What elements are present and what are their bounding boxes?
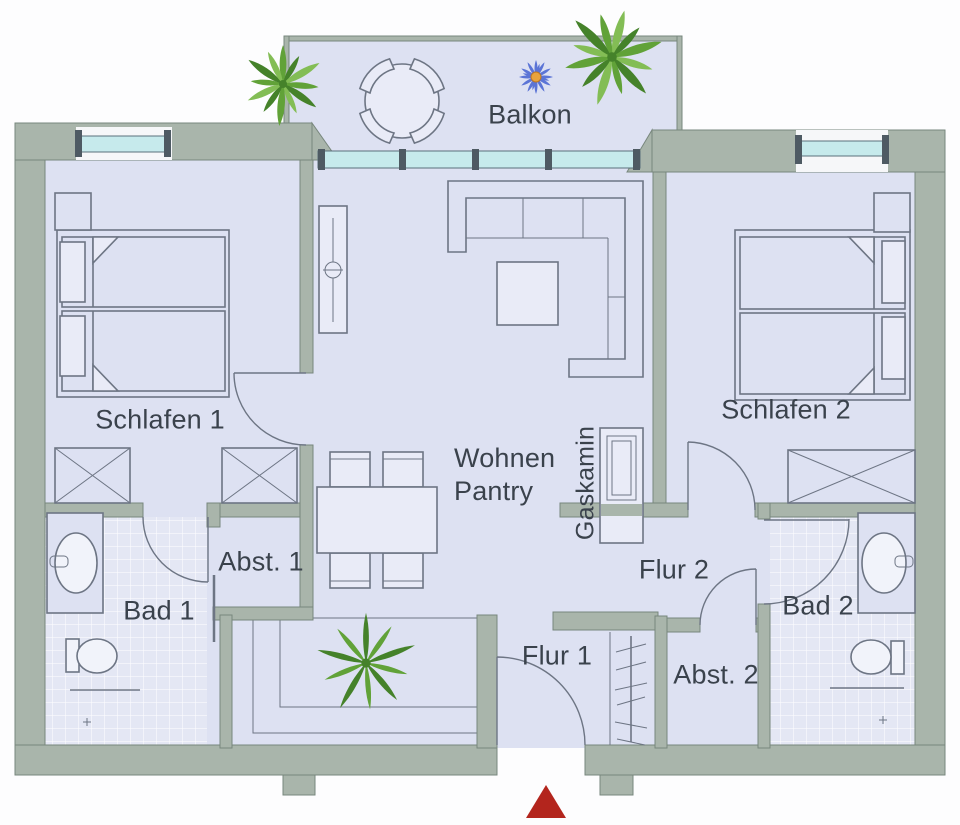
balcony-window-band (318, 149, 640, 170)
floor-plan: Balkon Schlafen 1 Schlafen 2 Wohnen Pant… (0, 0, 960, 825)
closet (222, 448, 297, 503)
room-label-flur2: Flur 2 (639, 555, 709, 586)
nightstand (55, 193, 91, 230)
window (795, 130, 889, 172)
room-label-schlafen1: Schlafen 1 (95, 405, 225, 436)
room-label-schlafen2: Schlafen 2 (721, 395, 851, 426)
room-label-flur1: Flur 1 (522, 641, 592, 672)
window (75, 127, 172, 160)
coffee-table (497, 262, 558, 325)
room-label-abst1: Abst. 1 (218, 547, 303, 578)
entrance-arrow-icon (526, 785, 566, 818)
room-label-abst2: Abst. 2 (673, 660, 758, 691)
room-label-wohnen-line2: Pantry (454, 475, 555, 508)
room-label-bad1: Bad 1 (123, 596, 195, 627)
room-label-wohnen-pantry: Wohnen Pantry (454, 442, 555, 508)
closet (55, 448, 130, 503)
room-label-gaskamin: Gaskamin (572, 426, 601, 540)
bed-1 (57, 230, 229, 397)
room-label-wohnen-line1: Wohnen (454, 442, 555, 475)
gas-fireplace (600, 428, 643, 543)
room-label-balkon: Balkon (488, 100, 572, 131)
room-label-bad2: Bad 2 (782, 591, 854, 622)
tv-board (319, 206, 347, 333)
closet (788, 450, 915, 503)
nightstand (874, 193, 910, 232)
bed-2 (735, 230, 910, 400)
